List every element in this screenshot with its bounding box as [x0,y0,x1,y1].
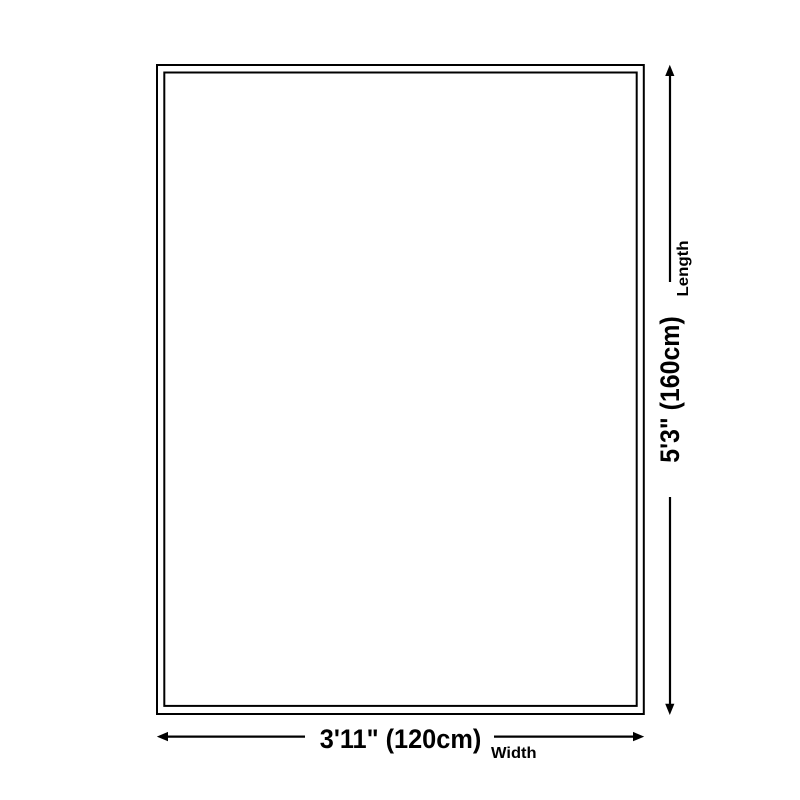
svg-text:3'11" (120cm): 3'11" (120cm) [320,724,482,754]
svg-text:5'3" (160cm): 5'3" (160cm) [655,316,685,463]
svg-text:Length: Length [675,241,692,297]
svg-text:Width: Width [491,745,537,762]
